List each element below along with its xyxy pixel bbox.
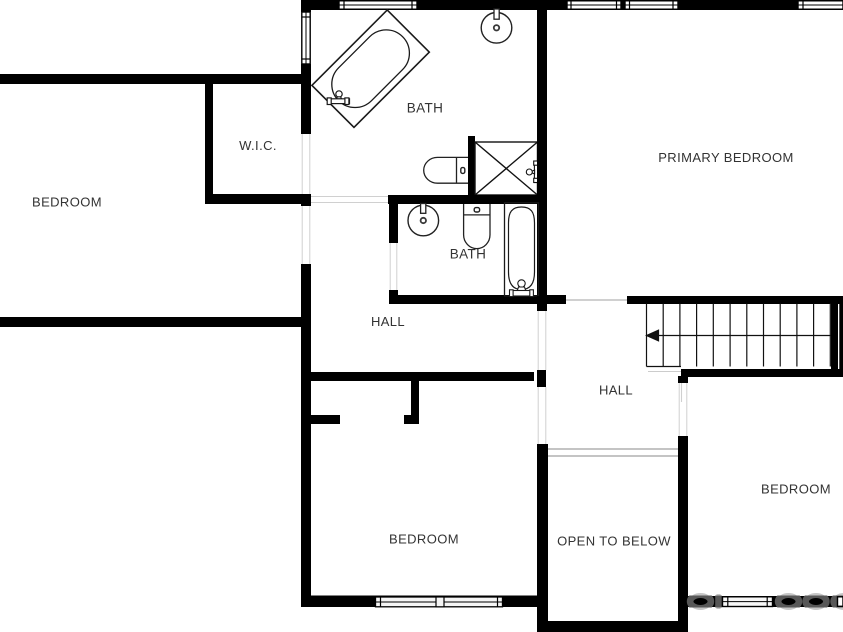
svg-text:PRIMARY BEDROOM: PRIMARY BEDROOM: [658, 150, 794, 165]
svg-text:BEDROOM: BEDROOM: [761, 482, 831, 497]
svg-text:W.I.C.: W.I.C.: [239, 138, 277, 153]
svg-text:BATH: BATH: [450, 247, 487, 262]
svg-text:HALL: HALL: [371, 314, 405, 329]
svg-text:BATH: BATH: [407, 101, 444, 116]
svg-text:HALL: HALL: [599, 383, 633, 398]
svg-text:BEDROOM: BEDROOM: [32, 195, 102, 210]
svg-text:OPEN TO BELOW: OPEN TO BELOW: [557, 534, 671, 549]
svg-text:BEDROOM: BEDROOM: [389, 532, 459, 547]
